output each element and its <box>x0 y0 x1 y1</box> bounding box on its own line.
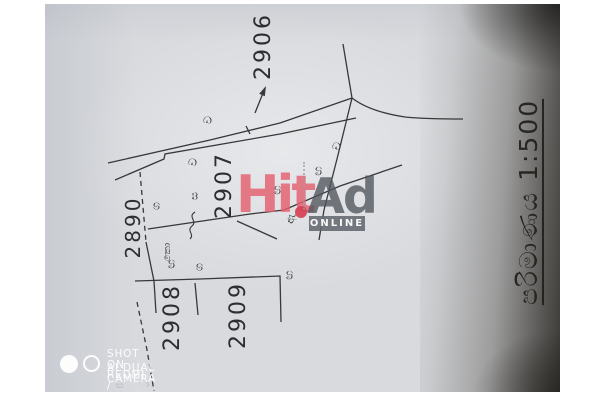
boundary-marker: ග <box>151 202 162 210</box>
lower-boundary <box>135 276 281 322</box>
squiggle-mark <box>190 212 195 239</box>
hitad-word2: Ad <box>307 172 376 221</box>
lot-label-2908: 2908 <box>162 283 184 351</box>
left-boundary-solid <box>146 242 156 313</box>
boundary-marker: ව <box>203 116 214 124</box>
lot-divider-2908-2909 <box>195 283 198 315</box>
hitad-separator <box>303 162 305 210</box>
scale-label: පරිමාණය 1:500 <box>513 59 545 345</box>
camera-watermark-line2: AI DUAL CAMERA <box>107 363 156 384</box>
boundary-marker: ව <box>188 158 199 166</box>
filled-circle-icon <box>60 355 78 373</box>
boundary-marker: ඟ <box>284 270 295 279</box>
lot-label-2890: 2890 <box>123 196 143 259</box>
hitad-dot-icon <box>295 206 307 218</box>
boundary-marker: ච <box>332 142 343 150</box>
boundary-marker: ග <box>194 263 205 271</box>
lot-label-2907: 2907 <box>214 151 236 219</box>
hitad-online-badge: ONLINE <box>309 216 365 231</box>
arrow-head <box>259 86 266 96</box>
boundary-marker: ඟ <box>166 259 177 268</box>
ring-circle-icon <box>83 355 100 372</box>
lot-label-2906: 2906 <box>253 12 275 80</box>
lot-label-2909: 2909 <box>228 281 250 349</box>
boundary-marker: ස <box>189 192 200 200</box>
top-branch-line <box>343 44 352 98</box>
